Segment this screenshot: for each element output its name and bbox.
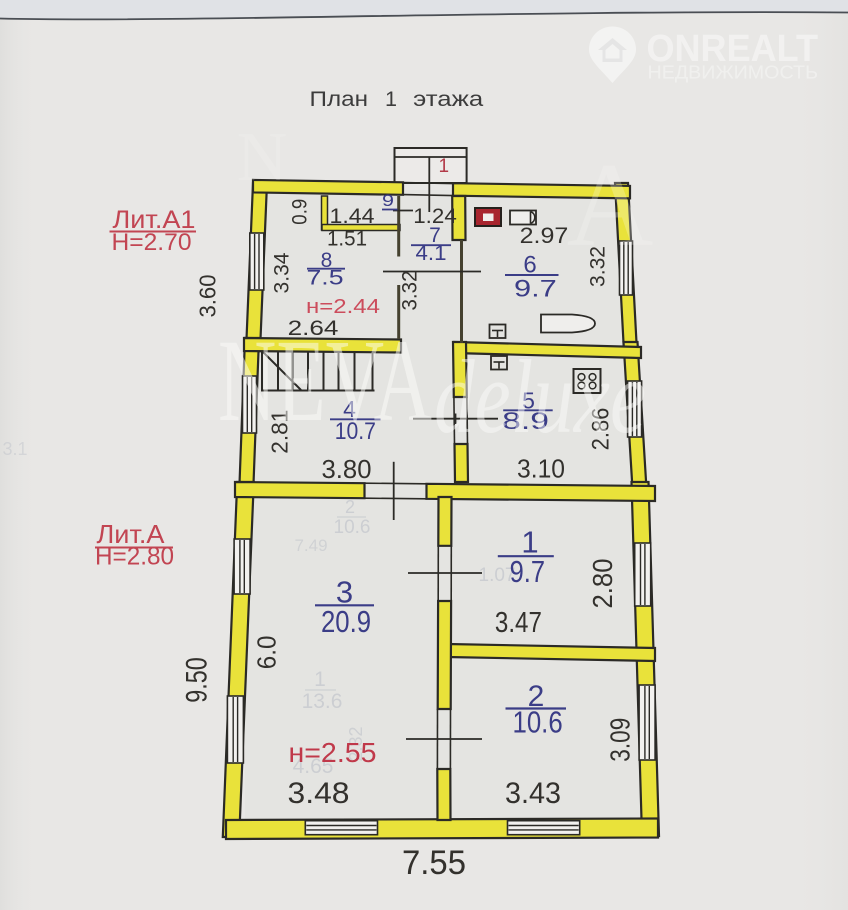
svg-text:9: 9 — [382, 191, 394, 210]
svg-text:1: 1 — [314, 668, 326, 691]
svg-text:10.6: 10.6 — [513, 704, 563, 739]
svg-text:3.1: 3.1 — [2, 439, 27, 459]
svg-text:9.50: 9.50 — [181, 657, 214, 703]
svg-text:3.09: 3.09 — [605, 718, 636, 762]
svg-text:6.0: 6.0 — [252, 636, 282, 670]
svg-text:этажа: этажа — [413, 88, 483, 111]
svg-text:3.34: 3.34 — [271, 252, 294, 293]
svg-text:20.9: 20.9 — [321, 604, 371, 639]
svg-text:3.80: 3.80 — [322, 454, 372, 484]
svg-text:1.44: 1.44 — [330, 205, 375, 228]
svg-text:deluxe: deluxe — [434, 338, 646, 455]
svg-text:13.6: 13.6 — [302, 690, 343, 713]
svg-text:НЕДВИЖИМОСТЬ: НЕДВИЖИМОСТЬ — [648, 63, 819, 83]
svg-text:Н=2.70: Н=2.70 — [112, 229, 192, 256]
svg-text:1: 1 — [385, 88, 397, 111]
svg-text:0.9: 0.9 — [289, 199, 312, 225]
svg-text:7.5: 7.5 — [307, 267, 344, 290]
svg-text:1.51: 1.51 — [327, 228, 367, 251]
svg-text:План: План — [310, 88, 369, 111]
svg-text:7.49: 7.49 — [294, 536, 327, 555]
svg-text:2.97: 2.97 — [520, 223, 569, 248]
svg-text:3.48: 3.48 — [288, 777, 350, 810]
svg-text:A: A — [567, 138, 654, 271]
svg-text:9.7: 9.7 — [510, 554, 545, 589]
svg-text:4.1: 4.1 — [416, 242, 447, 265]
svg-text:10.6: 10.6 — [334, 517, 371, 538]
svg-text:NEVA: NEVA — [218, 315, 432, 446]
svg-text:7.55: 7.55 — [402, 844, 466, 882]
svg-text:9.7: 9.7 — [514, 275, 557, 302]
svg-text:3.47: 3.47 — [495, 607, 542, 639]
svg-text:N: N — [237, 119, 288, 196]
svg-text:1: 1 — [439, 156, 450, 177]
svg-text:3.32: 3.32 — [399, 271, 422, 311]
svg-text:2.80: 2.80 — [587, 559, 618, 609]
svg-text:Н=2.80: Н=2.80 — [95, 543, 174, 571]
svg-text:3.43: 3.43 — [505, 777, 561, 810]
svg-text:н=2.55: н=2.55 — [289, 737, 377, 768]
svg-text:3.10: 3.10 — [517, 454, 565, 484]
svg-text:3.60: 3.60 — [195, 275, 221, 318]
svg-text:2: 2 — [345, 497, 355, 517]
